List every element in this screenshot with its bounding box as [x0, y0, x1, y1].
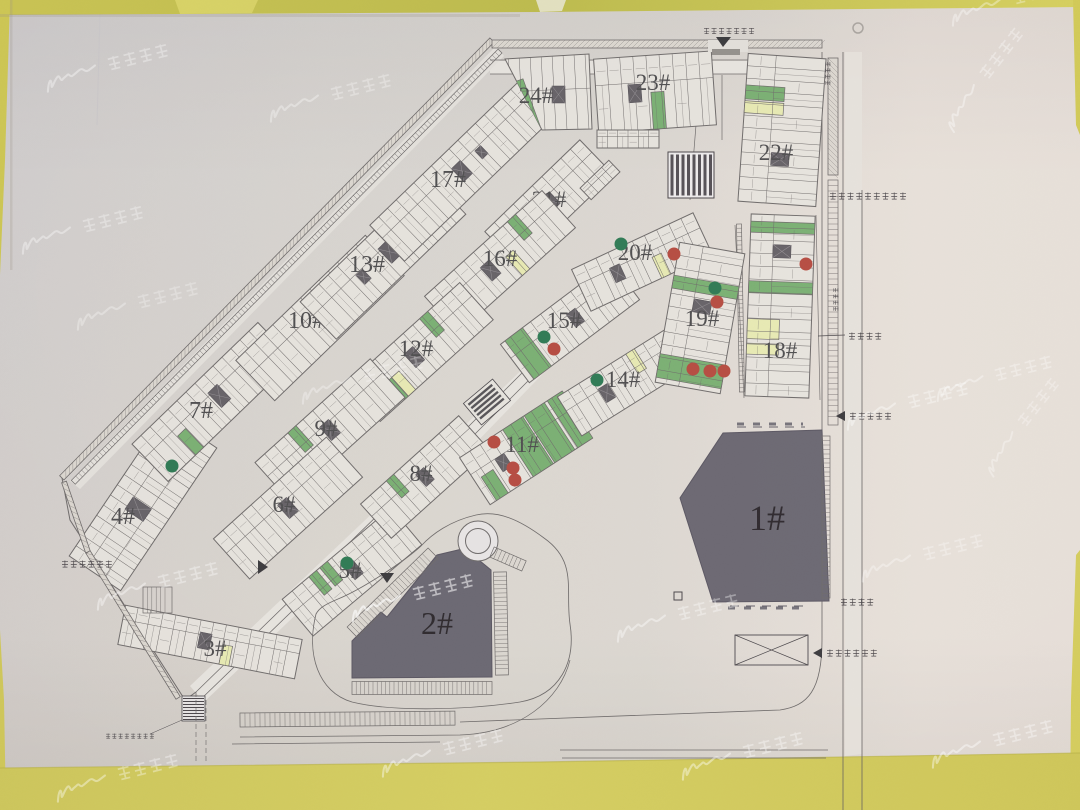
svg-text:1#: 1# [749, 498, 785, 538]
svg-text:11#: 11# [505, 432, 539, 457]
svg-text:3#: 3# [204, 636, 228, 661]
svg-text:2#: 2# [421, 605, 453, 641]
svg-text:13#: 13# [349, 252, 385, 278]
svg-text:23#: 23# [636, 70, 671, 95]
svg-text:15#: 15# [547, 308, 582, 333]
svg-text:18#: 18# [763, 338, 798, 363]
svg-text:7#: 7# [189, 398, 213, 424]
svg-text:6#: 6# [273, 492, 297, 517]
svg-text:19#: 19# [685, 306, 720, 331]
svg-text:8#: 8# [410, 461, 434, 486]
svg-text:24#: 24# [519, 83, 554, 108]
svg-text:22#: 22# [759, 140, 794, 165]
svg-text:14#: 14# [606, 367, 641, 392]
svg-text:4#: 4# [111, 504, 135, 530]
svg-text:17#: 17# [430, 167, 466, 193]
svg-text:16#: 16# [483, 246, 518, 271]
